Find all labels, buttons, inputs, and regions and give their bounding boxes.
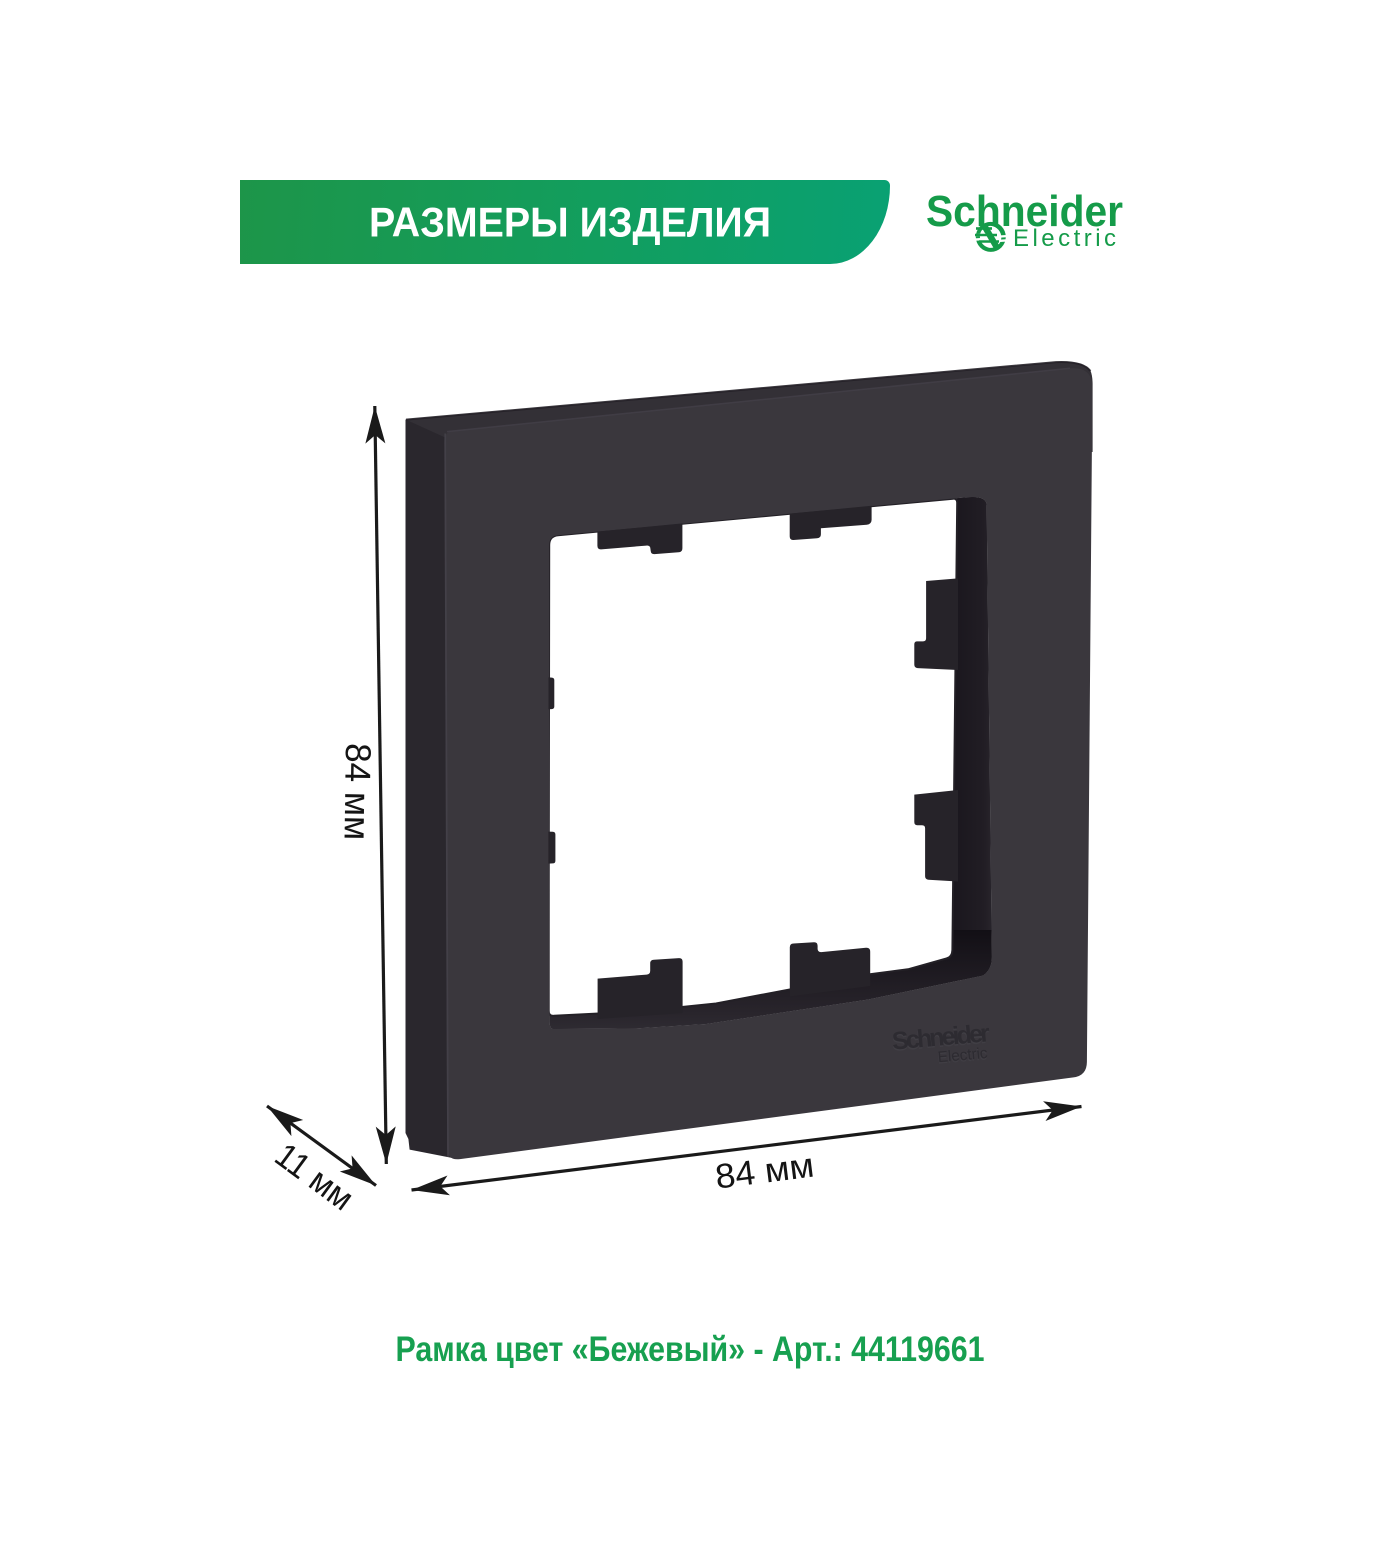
svg-text:Рамка цвет «Бежевый» - Арт.: 4: Рамка цвет «Бежевый» - Арт.: 44119661: [396, 1330, 985, 1369]
svg-text:84 мм: 84 мм: [336, 743, 379, 841]
svg-text:РАЗМЕРЫ ИЗДЕЛИЯ: РАЗМЕРЫ ИЗДЕЛИЯ: [369, 199, 771, 246]
svg-text:84 мм: 84 мм: [713, 1147, 816, 1197]
svg-text:11 мм: 11 мм: [268, 1136, 361, 1218]
